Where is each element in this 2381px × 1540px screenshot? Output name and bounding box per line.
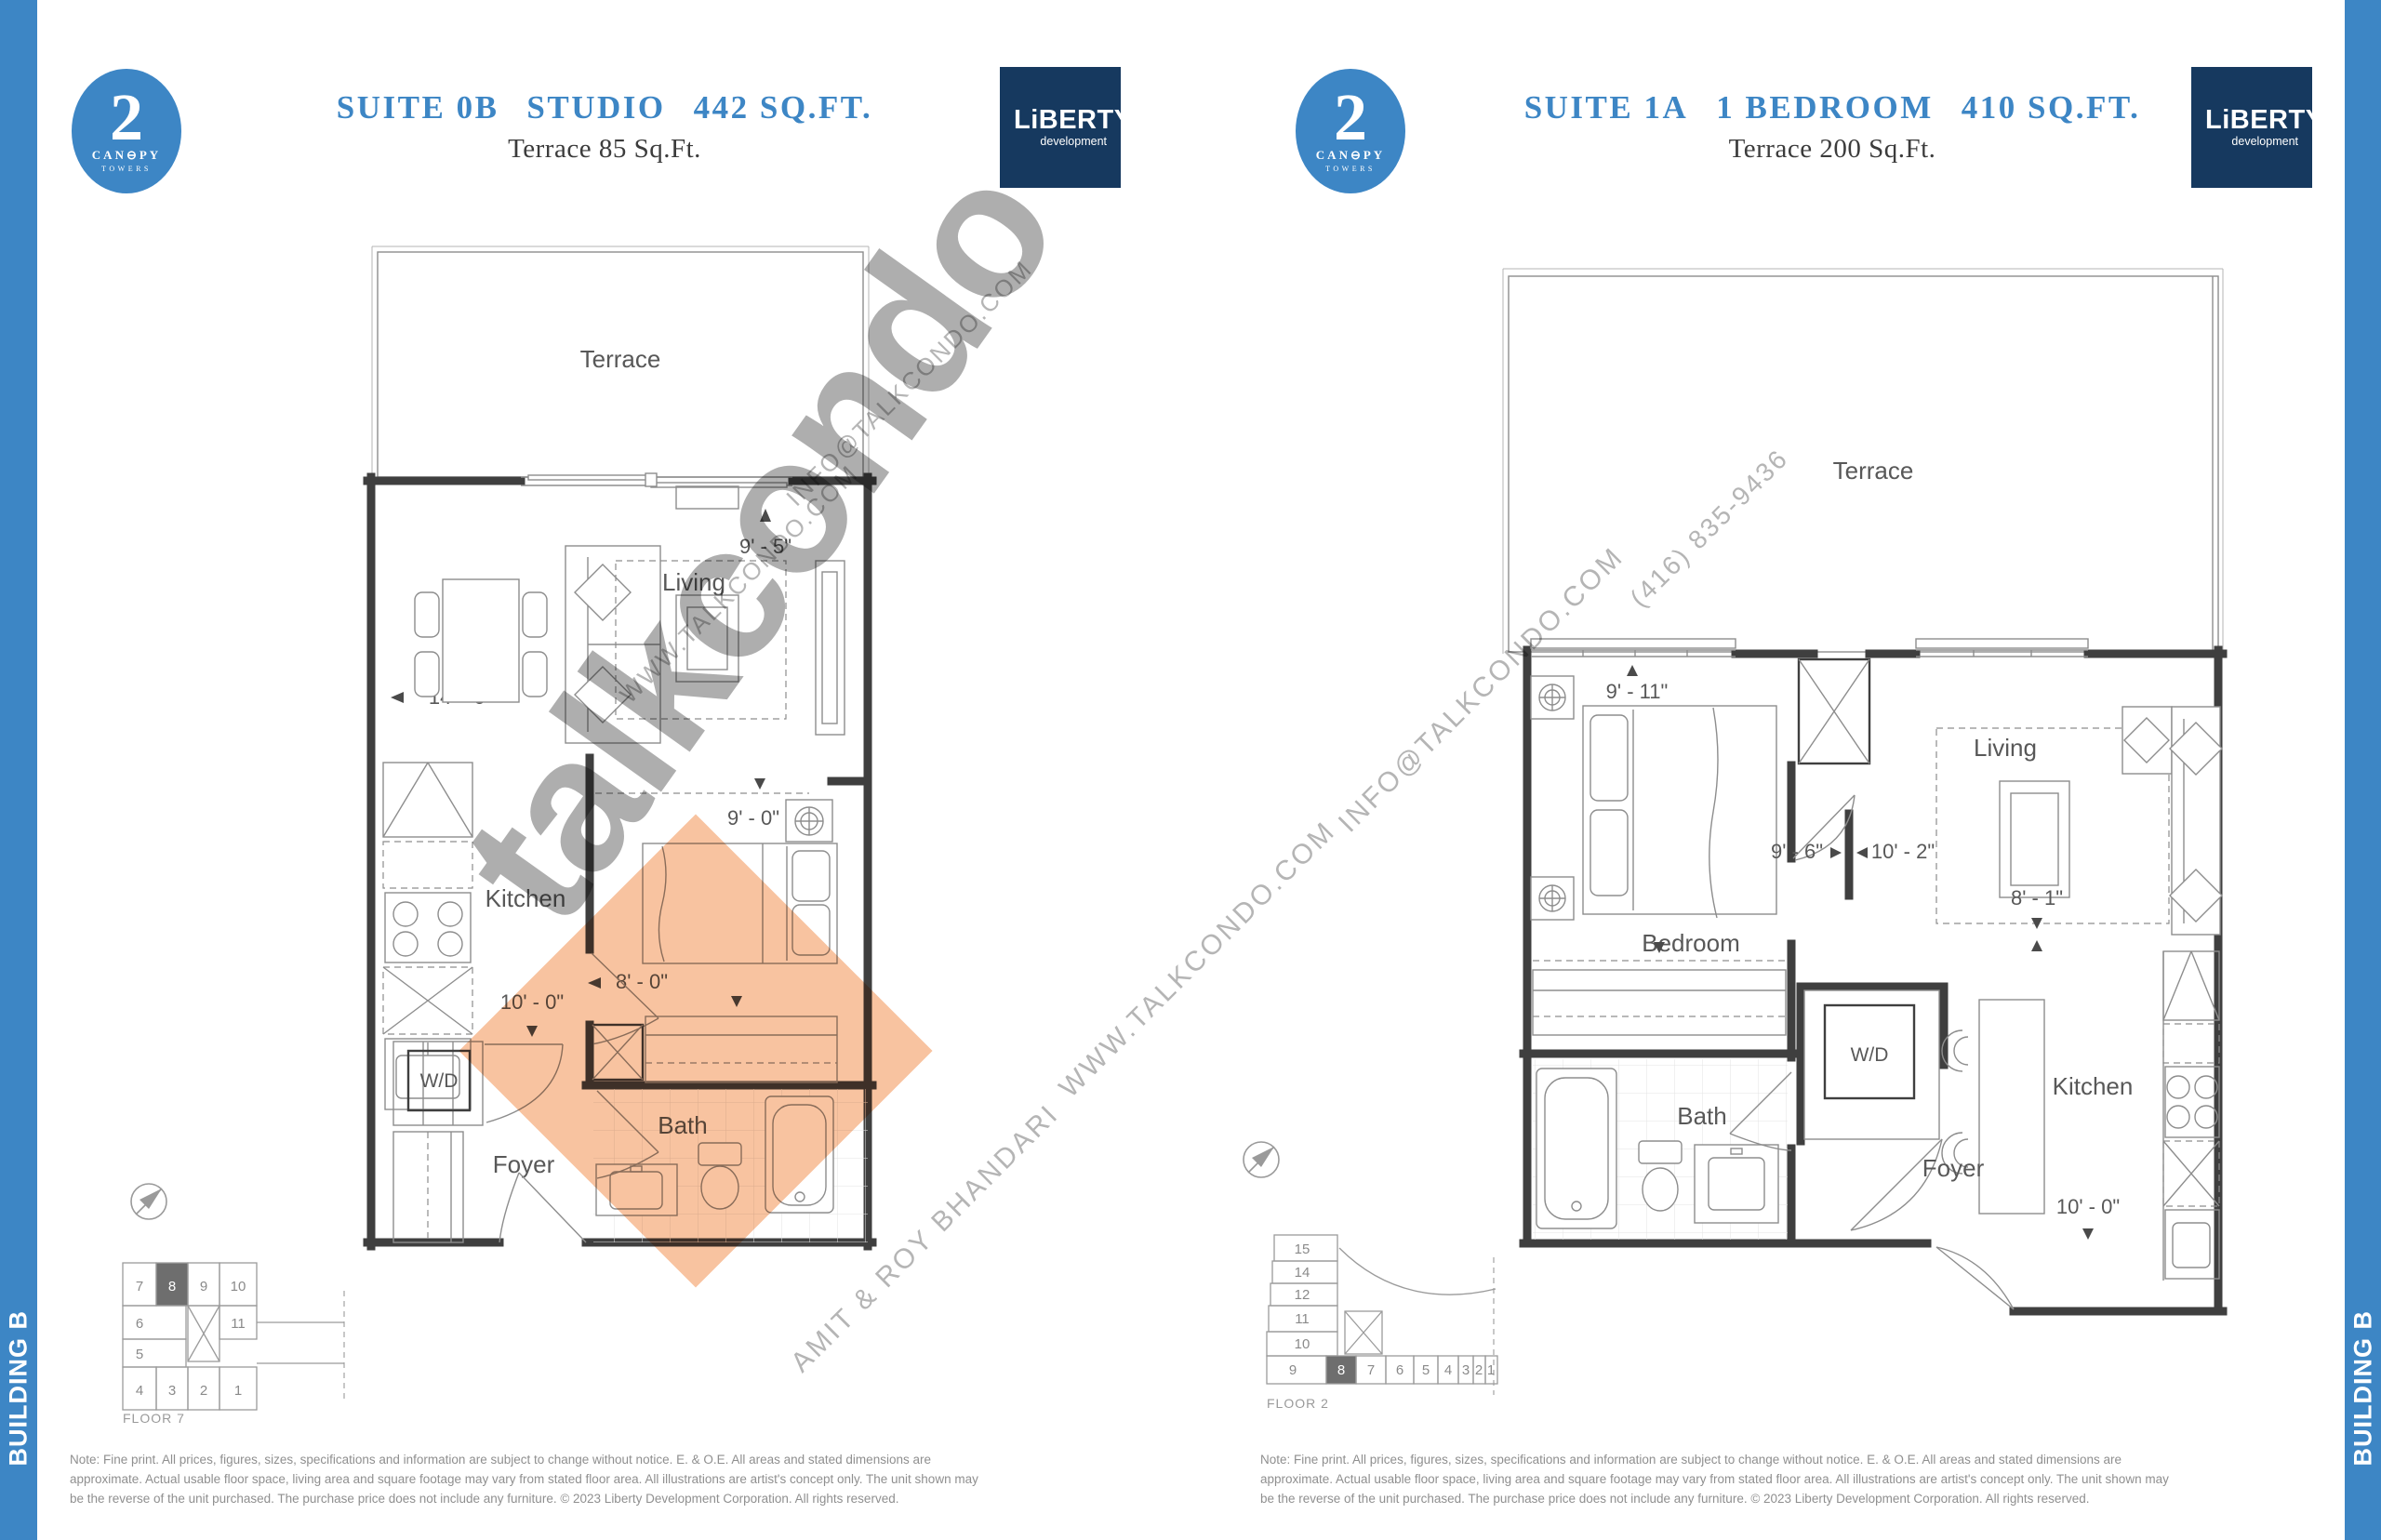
keyplan-unit: 14 <box>1295 1265 1310 1281</box>
building-label-left: BUILDING B <box>5 1310 33 1467</box>
canopy-name: CAN⊖PY <box>1316 148 1385 163</box>
entry-door-swing <box>499 1173 519 1242</box>
vanity-sink <box>596 1164 677 1215</box>
floor-plan-right: Terrace <box>1479 256 2232 1321</box>
suite-area: 410 SQ.FT. <box>1962 89 2141 126</box>
keyplan-unit: 10 <box>231 1279 246 1294</box>
dresser <box>645 996 837 1082</box>
keyplan-unit: 11 <box>1295 1311 1310 1327</box>
suite-title-block-right: SUITE 1A 1 BEDROOM 410 SQ.FT. Terrace 20… <box>1535 89 2130 165</box>
dimension-9-5: 9' - 5" <box>739 535 791 558</box>
room-label-living: Living <box>662 568 725 596</box>
compass-icon <box>1241 1139 1282 1180</box>
keyplan-unit: 6 <box>1396 1362 1403 1378</box>
keyplan-unit-highlight: 8 <box>168 1279 176 1294</box>
keyplan-unit: 4 <box>136 1383 143 1399</box>
entry-closet <box>1799 659 1869 763</box>
building-label-right: BUILDING B <box>2348 1310 2377 1467</box>
toilet <box>698 1143 741 1209</box>
keyplan-unit: 7 <box>1367 1362 1375 1378</box>
dimension-9-6: 9' - 6" <box>1771 840 1823 863</box>
door-swing <box>486 1044 563 1122</box>
kitchen-counters <box>2163 951 2219 1281</box>
dimension-8-0: 8' - 0" <box>616 970 668 993</box>
door-swing <box>592 1018 658 1044</box>
bathtub <box>1536 1069 1616 1228</box>
dimension-10-0: 10' - 0" <box>500 990 564 1014</box>
canopy-number: 2 <box>110 89 143 146</box>
suite-subtitle-right: Terrace 200 Sq.Ft. <box>1535 134 2130 165</box>
dim-arrow-right <box>1830 847 1842 858</box>
keyplan-unit: 12 <box>1295 1287 1310 1303</box>
room-label-foyer: Foyer <box>493 1150 555 1178</box>
suite-subtitle-left: Terrace 85 Sq.Ft. <box>307 134 902 165</box>
entry-door-leaf <box>519 1173 586 1242</box>
room-label-bath: Bath <box>1677 1102 1727 1130</box>
keyplan-unit: 9 <box>200 1279 207 1294</box>
suite-title-left: SUITE 0B STUDIO 442 SQ.FT. <box>307 89 902 126</box>
dim-arrow-up <box>2031 940 2042 951</box>
keyplan-unit: 6 <box>136 1316 143 1332</box>
dim-arrow-up <box>1627 665 1638 676</box>
dimension-10-2: 10' - 2" <box>1871 840 1935 863</box>
bed <box>1583 706 1776 918</box>
dim-tick <box>754 778 765 790</box>
liberty-logo-right: LiBERTY development <box>2191 67 2312 188</box>
suite-title-right: SUITE 1A 1 BEDROOM 410 SQ.FT. <box>1535 89 2130 126</box>
canopy-towers-logo-right: 2 CAN⊖PY TOWERS <box>1296 69 1405 193</box>
keyplan-unit: 3 <box>1462 1362 1470 1378</box>
dim-arrow-left <box>1856 847 1868 858</box>
dim-arrow-left <box>588 977 601 989</box>
room-label-terrace: Terrace <box>580 345 661 373</box>
suite-type: STUDIO <box>526 89 665 126</box>
dim-arrow-left <box>391 692 404 703</box>
room-label-foyer: Foyer <box>1922 1154 1985 1182</box>
room-label-kitchen: Kitchen <box>486 884 566 912</box>
sidebar-left: BUILDING B <box>0 0 37 1540</box>
liberty-logo-left: LiBERTY development <box>1000 67 1121 188</box>
room-label-kitchen: Kitchen <box>2053 1072 2134 1100</box>
keyplan-floor-label: FLOOR 2 <box>1267 1396 1329 1411</box>
ceiling-fixture <box>1531 676 1574 719</box>
sofa <box>565 546 660 743</box>
keyplan-unit: 2 <box>200 1383 207 1399</box>
sofa <box>2122 707 2222 935</box>
canopy-sub: TOWERS <box>101 165 152 173</box>
dimension-9-0: 9' - 0" <box>727 806 779 830</box>
keyplan-unit: 5 <box>136 1347 143 1362</box>
room-label-living: Living <box>1974 734 2037 762</box>
suite-id: SUITE 0B <box>337 89 499 126</box>
fine-print-right: Note: Fine print. All prices, figures, s… <box>1260 1451 2181 1509</box>
keyplan-floor-label: FLOOR 7 <box>123 1411 185 1426</box>
suite-type: 1 BEDROOM <box>1716 89 1933 126</box>
keyplan-unit: 10 <box>1295 1336 1310 1352</box>
bedroom-window <box>1531 639 1736 657</box>
keyplan-unit: 3 <box>168 1383 176 1399</box>
ceiling-fixture <box>1531 877 1574 920</box>
canopy-sub: TOWERS <box>1325 165 1376 173</box>
keyplan-unit: 11 <box>231 1316 246 1332</box>
sidebar-right: BUILDING B <box>2345 0 2381 1540</box>
closet <box>592 1025 643 1080</box>
room-label-bath: Bath <box>658 1111 708 1139</box>
canopy-number: 2 <box>1334 89 1367 146</box>
dimension-8-1: 8' - 1" <box>2011 886 2063 909</box>
room-label-wd: W/D <box>1851 1044 1889 1066</box>
tv-console <box>2000 781 2069 897</box>
liberty-name: LiBERTY <box>1014 107 1107 134</box>
suite-title-block-left: SUITE 0B STUDIO 442 SQ.FT. Terrace 85 Sq… <box>307 89 902 165</box>
room-label-wd: W/D <box>420 1070 459 1092</box>
liberty-sub: development <box>1014 135 1107 148</box>
keyplan-unit: 9 <box>1289 1362 1297 1378</box>
liberty-sub: development <box>2205 135 2298 148</box>
canopy-towers-logo-left: 2 CAN⊖PY TOWERS <box>72 69 181 193</box>
bathtub <box>765 1096 833 1213</box>
fine-print-left: Note: Fine print. All prices, figures, s… <box>70 1451 991 1509</box>
keyplan-unit: 1 <box>1487 1362 1495 1378</box>
canopy-name: CAN⊖PY <box>92 148 161 163</box>
door-leaf <box>1851 1139 1942 1230</box>
dim-arrow-up <box>760 509 771 522</box>
room-label-terrace: Terrace <box>1833 457 1914 485</box>
living-window <box>1916 639 2088 657</box>
suite-area: 442 SQ.FT. <box>694 89 873 126</box>
balcony-door <box>521 473 792 509</box>
kitchen-counters <box>383 763 472 1109</box>
dining-table <box>415 579 547 702</box>
window-seat-inner <box>822 572 837 724</box>
compass-icon <box>128 1181 169 1222</box>
entry-door-leaf <box>1936 1247 2014 1309</box>
keyplan-unit-highlight: 8 <box>1337 1362 1345 1378</box>
keyplan-unit: 5 <box>1422 1362 1430 1378</box>
floorplan-flyer: { "colors":{ "accent":"#3d86c5","navy":"… <box>0 0 2381 1540</box>
vanity-sink <box>1695 1145 1778 1223</box>
tv-console <box>676 595 738 682</box>
dim-arrow-down <box>2082 1228 2094 1240</box>
keyplan-unit: 1 <box>234 1383 242 1399</box>
watermark-website: WWW.TALKCONDO.COM <box>1054 816 1343 1105</box>
keyplan-right: 15 14 12 11 10 9 8 7 6 5 4 3 2 1 FLOOR 2 <box>1256 1229 1502 1415</box>
keyplan-unit: 15 <box>1295 1241 1310 1257</box>
window-seat <box>816 561 845 735</box>
ceiling-fixture <box>786 800 832 842</box>
liberty-name: LiBERTY <box>2205 107 2298 134</box>
keyplan-unit: 7 <box>136 1279 143 1294</box>
dimension-9-11: 9' - 11" <box>1606 680 1669 703</box>
suite-id: SUITE 1A <box>1524 89 1689 126</box>
foyer-closet <box>393 1132 463 1242</box>
dim-arrow-down <box>526 1026 538 1037</box>
keyplan-unit: 2 <box>1475 1362 1483 1378</box>
keyplan-unit: 4 <box>1444 1362 1452 1378</box>
keyplan-left: 7 8 9 10 6 11 5 4 3 2 1 FLOOR 7 <box>112 1254 353 1426</box>
dimension-10-0: 10' - 0" <box>2056 1195 2120 1218</box>
floor-plan-left: Terrace 9' - 5" 14' - 6" <box>363 237 884 1260</box>
bed <box>643 843 837 963</box>
